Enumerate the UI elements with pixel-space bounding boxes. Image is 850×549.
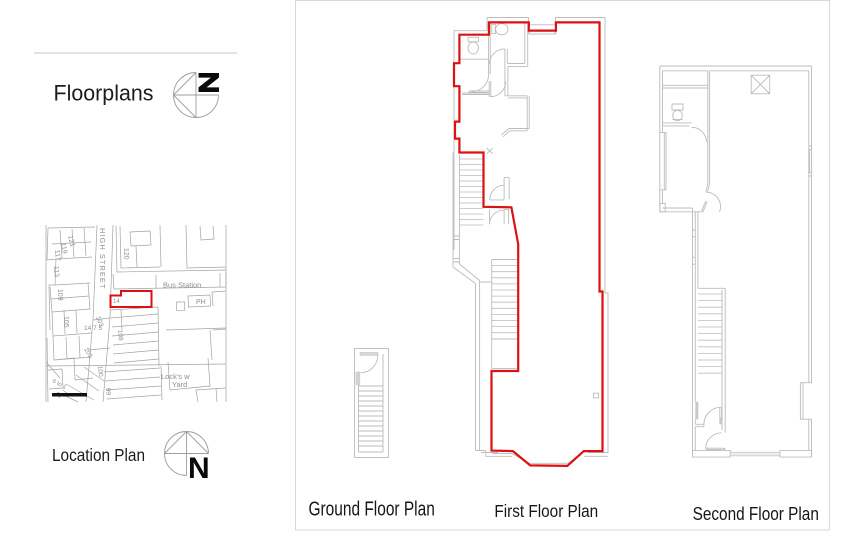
svg-text:6 to 1: 6 to 1 [51, 378, 68, 391]
svg-text:Second Floor Plan: Second Floor Plan [693, 503, 819, 524]
svg-text:117: 117 [53, 249, 61, 261]
svg-text:Yard: Yard [172, 380, 187, 389]
svg-text:109: 109 [56, 289, 63, 301]
svg-text:First Floor Plan: First Floor Plan [494, 501, 598, 521]
svg-text:N: N [188, 452, 210, 485]
svg-text:100: 100 [96, 366, 104, 378]
svg-text:14: 14 [113, 299, 120, 305]
svg-text:105: 105 [62, 316, 69, 328]
svg-text:Floorplans: Floorplans [54, 81, 154, 106]
svg-text:PH: PH [196, 299, 206, 306]
svg-text:99: 99 [104, 388, 112, 396]
svg-text:120: 120 [122, 248, 129, 260]
svg-text:Location Plan: Location Plan [52, 445, 145, 465]
svg-text:Bus Station: Bus Station [163, 281, 201, 290]
svg-text:HIGH STREET: HIGH STREET [98, 228, 107, 289]
svg-text:113: 113 [52, 266, 60, 278]
svg-text:108: 108 [116, 330, 124, 342]
svg-text:Ground Floor Plan: Ground Floor Plan [309, 498, 435, 520]
